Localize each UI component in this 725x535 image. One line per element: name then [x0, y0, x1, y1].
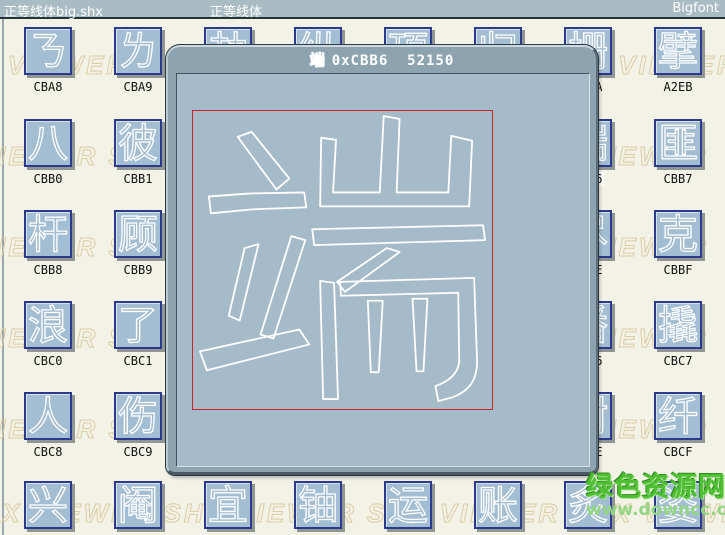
glyph-tile[interactable]: 了CBC1 [114, 301, 162, 368]
glyph-tile[interactable]: 伤CBC9 [114, 392, 162, 459]
dialog-mini-glyph-icon: 端 [310, 51, 326, 69]
glyph-tile-box[interactable]: 纤 [654, 392, 702, 440]
glyph-tile[interactable]: ㄌCBA9 [114, 27, 162, 94]
dialog-canvas [176, 73, 590, 467]
glyph-tile[interactable]: 彼CBB1 [114, 119, 162, 186]
tile-glyph-char: 纤 [656, 394, 700, 440]
tile-glyph-char: 顾 [116, 212, 160, 258]
tile-code-label: CBC0 [24, 354, 72, 368]
glyph-tile-box[interactable]: 阉 [114, 481, 162, 529]
tile-glyph-char: 匪 [656, 121, 700, 167]
glyph-tile[interactable]: 铀 [294, 481, 342, 534]
tile-glyph-char: 了 [116, 303, 160, 349]
site-watermark: 绿色资源网 www.downcc.com [586, 474, 725, 519]
glyph-tile-box[interactable]: 人 [24, 392, 72, 440]
glyph-tile[interactable]: 克CBBF [654, 210, 702, 277]
glyph-tile-box[interactable]: 伤 [114, 392, 162, 440]
glyph-tile-box[interactable]: 账 [474, 481, 522, 529]
glyph-tile-box[interactable]: 匪 [654, 119, 702, 167]
glyph-tile-box[interactable]: 撬 [654, 301, 702, 349]
glyph-tile-box[interactable]: 宜 [204, 481, 252, 529]
glyph-tile-box[interactable]: 顾 [114, 210, 162, 258]
tile-glyph-char: 兴 [26, 483, 70, 529]
site-watermark-name: 绿色资源网 [586, 474, 725, 501]
glyph-tile[interactable]: 阉 [114, 481, 162, 534]
tile-code-label: CBB1 [114, 172, 162, 186]
glyph-tile-box[interactable]: 擘 [654, 27, 702, 75]
glyph-tile[interactable]: 撬CBC7 [654, 301, 702, 368]
tile-glyph-char: 运 [386, 483, 430, 529]
glyph-tile[interactable]: ㄋCBA8 [24, 27, 72, 94]
tile-glyph-char: 账 [476, 483, 520, 529]
dialog-code-dec: 52150 [407, 53, 454, 69]
font-name: 正等线体 [210, 1, 262, 20]
glyph-tile-box[interactable]: 运 [384, 481, 432, 529]
tile-code-label: CBB8 [24, 263, 72, 277]
glyph-tile-box[interactable]: 彼 [114, 119, 162, 167]
glyph-tile-box[interactable]: 浪 [24, 301, 72, 349]
dialog-code-hex: 0xCBB6 [332, 53, 389, 69]
glyph-tile-box[interactable]: 兴 [24, 481, 72, 529]
window-left-edge [2, 19, 4, 535]
glyph-tile-box[interactable]: 杆 [24, 210, 72, 258]
glyph-outline-drawing [193, 111, 492, 409]
tile-code-label: CBB0 [24, 172, 72, 186]
glyph-tile-box[interactable]: 克 [654, 210, 702, 258]
tile-glyph-char: 杆 [26, 212, 70, 258]
tile-code-label: CBCF [654, 445, 702, 459]
glyph-tile[interactable]: 擘A2EB [654, 27, 702, 94]
font-file-name: 正等线体big.shx [4, 1, 103, 20]
tile-glyph-char: 伤 [116, 394, 160, 440]
glyph-tile-box[interactable]: ㄋ [24, 27, 72, 75]
tile-glyph-char: 擘 [656, 29, 700, 75]
tile-code-label: CBB9 [114, 263, 162, 277]
glyph-preview-dialog: 端0xCBB6 52150 [166, 45, 598, 475]
tile-code-label: CBC1 [114, 354, 162, 368]
tile-glyph-char: 克 [656, 212, 700, 258]
tile-code-label: CBA9 [114, 80, 162, 94]
tile-glyph-char: ㄌ [116, 29, 160, 75]
glyph-tile[interactable]: 宜 [204, 481, 252, 534]
tile-glyph-char: 浪 [26, 303, 70, 349]
glyph-tile[interactable]: 运 [384, 481, 432, 534]
site-watermark-url: www.downcc.com [586, 502, 725, 519]
tile-glyph-char: 八 [26, 121, 70, 167]
glyph-tile[interactable]: 浪CBC0 [24, 301, 72, 368]
tile-code-label: CBC9 [114, 445, 162, 459]
tile-code-label: CBB7 [654, 172, 702, 186]
glyph-tile[interactable]: 账 [474, 481, 522, 534]
glyph-tile[interactable]: 纤CBCF [654, 392, 702, 459]
tile-glyph-char: 宜 [206, 483, 250, 529]
glyph-tile[interactable]: 杆CBB8 [24, 210, 72, 277]
tile-code-label: A2EB [654, 80, 702, 94]
glyph-tile[interactable]: 顾CBB9 [114, 210, 162, 277]
glyph-tile-box[interactable]: 铀 [294, 481, 342, 529]
glyph-tile-box[interactable]: ㄌ [114, 27, 162, 75]
glyph-tile[interactable]: 兴 [24, 481, 72, 534]
tile-glyph-char: 阉 [116, 483, 160, 529]
tile-glyph-char: 彼 [116, 121, 160, 167]
tile-code-label: CBC7 [654, 354, 702, 368]
tile-code-label: CBBF [654, 263, 702, 277]
tile-glyph-char: 人 [26, 394, 70, 440]
glyph-tile[interactable]: 人CBC8 [24, 392, 72, 459]
glyph-tile[interactable]: 八CBB0 [24, 119, 72, 186]
tile-code-label: CBA8 [24, 80, 72, 94]
glyph-tile-box[interactable]: 了 [114, 301, 162, 349]
glyph-bounding-box [192, 110, 493, 410]
title-bar: 正等线体big.shx 正等线体 Bigfont [0, 0, 725, 19]
tile-code-label: CBC8 [24, 445, 72, 459]
bigfont-label: Bigfont [672, 1, 719, 16]
tile-glyph-char: 撬 [656, 303, 700, 349]
tile-glyph-char: ㄋ [26, 29, 70, 75]
glyph-tile-box[interactable]: 八 [24, 119, 72, 167]
dialog-title-bar[interactable]: 端0xCBB6 52150 [168, 49, 596, 71]
glyph-tile[interactable]: 匪CBB7 [654, 119, 702, 186]
tile-glyph-char: 铀 [296, 483, 340, 529]
